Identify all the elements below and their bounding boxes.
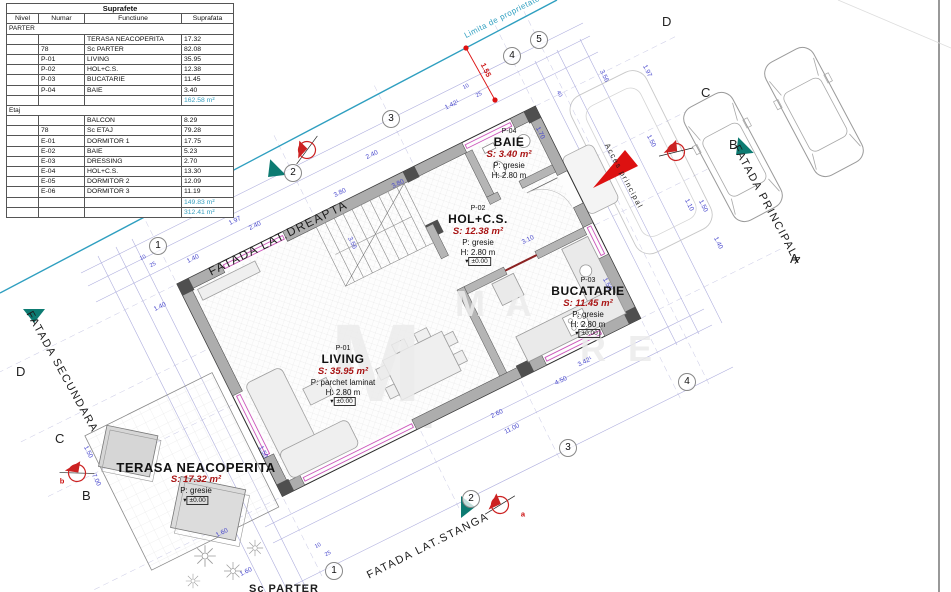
axis-bubble-3: 3	[559, 439, 577, 457]
table-row: P-03BUCATARIE11.45	[7, 75, 234, 85]
table-cell	[39, 95, 85, 105]
dimension-text: 1.50	[645, 134, 657, 148]
axis-bubble-1: 1	[325, 562, 343, 580]
dimension-text: 3.10	[521, 234, 535, 246]
room-height: H: 2.80 m	[448, 248, 508, 258]
cell: E-05	[39, 177, 85, 187]
cell: P-02	[39, 65, 85, 75]
dimension-text: 10	[462, 83, 470, 91]
cell: 13.30	[182, 167, 234, 177]
table-cell	[7, 197, 39, 207]
dimension-text: 3.80	[333, 187, 347, 199]
level-marker: ▾±0.00	[551, 330, 624, 338]
cell	[7, 177, 39, 187]
room-area: S: 35.95 m²	[311, 366, 375, 378]
dimension-text: 25	[324, 550, 332, 558]
dimension-text: 1.40	[186, 253, 200, 265]
cell: DORMITOR 3	[85, 187, 182, 197]
cell	[7, 44, 39, 54]
room-floor-finish: P: gresie	[448, 238, 508, 248]
dimension-text: 1.50	[697, 199, 709, 213]
table-cell	[39, 197, 85, 207]
floor-plan-sheet: M AR EM 1.402.403.801.971.42¹2.403.803.1…	[0, 0, 951, 592]
axis-bubble-5: 5	[530, 31, 548, 49]
facade-label: FATADA LAT.STANGA	[365, 511, 491, 582]
cell: 12.09	[182, 177, 234, 187]
cell	[7, 85, 39, 95]
table-row: TERASA NEACOPERITA17.32	[7, 34, 234, 44]
table-row: 78Sc PARTER82.08	[7, 44, 234, 54]
cell: E-04	[39, 167, 85, 177]
table-row: P-02HOL+C.S.12.38	[7, 65, 234, 75]
table-row: E-03DRESSING2.70	[7, 156, 234, 166]
section-total: 149.83 m²	[182, 197, 234, 207]
dimension-text: 3.56	[346, 236, 358, 250]
table-row: BALCON8.29	[7, 116, 234, 126]
cell: BALCON	[85, 116, 182, 126]
cell	[7, 136, 39, 146]
room-floor-finish: P: gresie	[116, 486, 275, 496]
dimension-text: 10	[314, 542, 322, 550]
table-row: PARTER	[7, 24, 234, 34]
cell: 11.19	[182, 187, 234, 197]
dimension-text: 1.42¹	[444, 99, 460, 112]
cell: DRESSING	[85, 156, 182, 166]
areas-table: SuprafeteNivelNumarFunctiuneSuprafataPAR…	[6, 3, 234, 218]
cell	[7, 167, 39, 177]
cell: 3.40	[182, 85, 234, 95]
dimension-text: 25	[149, 261, 157, 269]
cell: E-03	[39, 156, 85, 166]
dimension-text: 2.40	[365, 149, 379, 161]
room-label: P-04BAIES: 3.40 m²P: gresieH: 2.80 m	[487, 127, 532, 180]
column-header: Nivel	[7, 14, 39, 24]
cell: E-01	[39, 136, 85, 146]
facade-label: Acces principal	[603, 142, 645, 211]
cell	[7, 156, 39, 166]
room-area: S: 11.45 m²	[551, 298, 624, 310]
table-row: E-05DORMITOR 212.09	[7, 177, 234, 187]
table-row: 149.83 m²	[7, 197, 234, 207]
table-row: Suprafete	[7, 4, 234, 14]
cell: 12.38	[182, 65, 234, 75]
dimension-text: 40	[555, 90, 563, 98]
table-cell	[85, 207, 182, 217]
cell	[7, 116, 39, 126]
room-label: P-03BUCATARIES: 11.45 m²P: gresieH: 2.80…	[551, 276, 624, 338]
cell	[7, 126, 39, 136]
cell: 78	[39, 44, 85, 54]
dimension-text: 11.00	[503, 422, 520, 435]
cell: DORMITOR 1	[85, 136, 182, 146]
column-header: Numar	[39, 14, 85, 24]
axis-bubble-D: D	[16, 364, 25, 379]
table-row: E-02BAIE5.23	[7, 146, 234, 156]
table-cell	[85, 197, 182, 207]
room-area: S: 17.32 m²	[116, 474, 275, 486]
table-row: 312.41 m²	[7, 207, 234, 217]
dimension-text: b	[60, 477, 65, 486]
axis-bubble-C: C	[701, 85, 710, 100]
dimension-text: 25	[475, 91, 483, 99]
facade-label: FATADA PRINCIPALA	[730, 143, 803, 267]
dimension-text: 1.55	[479, 61, 493, 78]
room-label: TERASA NEACOPERITAS: 17.32 m²P: gresie▾±…	[116, 461, 275, 505]
room-height: H: 2.80 m	[487, 171, 532, 181]
dimension-text: 3.56	[598, 69, 610, 83]
cell	[7, 65, 39, 75]
cell: 5.23	[182, 146, 234, 156]
cell	[39, 116, 85, 126]
facade-label: FATADA SECUNDARA	[24, 309, 101, 434]
cell: P-01	[39, 54, 85, 64]
cell: HOL+C.S.	[85, 167, 182, 177]
dimension-text: 1.97	[641, 64, 653, 78]
table-row: E-06DORMITOR 311.19	[7, 187, 234, 197]
table-row: P-01LIVING35.95	[7, 54, 234, 64]
level-marker: ▾±0.00	[311, 398, 375, 406]
axis-bubble-B: B	[82, 488, 91, 503]
table-cell	[7, 207, 39, 217]
table-row: 162.58 m²	[7, 95, 234, 105]
cell: E-06	[39, 187, 85, 197]
room-name: HOL+C.S.	[448, 213, 508, 226]
cell: BAIE	[85, 85, 182, 95]
column-header: Functiune	[85, 14, 182, 24]
cell: 82.08	[182, 44, 234, 54]
cell: Sc ETAJ	[85, 126, 182, 136]
cell: P-03	[39, 75, 85, 85]
cell: TERASA NEACOPERITA	[85, 34, 182, 44]
column-header: Suprafata	[182, 14, 234, 24]
cell: 2.70	[182, 156, 234, 166]
dimension-text: 1.70	[534, 126, 546, 140]
axis-bubble-2: 2	[284, 164, 302, 182]
level-marker: ▾±0.00	[116, 497, 275, 505]
dimension-text: 4.50	[554, 375, 568, 387]
axis-bubble-2: 2	[462, 490, 480, 508]
cell: 17.75	[182, 136, 234, 146]
room-name: LIVING	[311, 353, 375, 366]
axis-bubble-4: 4	[678, 373, 696, 391]
dimension-text: 1.10	[683, 198, 695, 212]
cell: BAIE	[85, 146, 182, 156]
dimension-text: 1.40	[712, 236, 724, 250]
cell	[39, 34, 85, 44]
section-total: 312.41 m²	[182, 207, 234, 217]
room-name: BUCATARIE	[551, 285, 624, 298]
cell	[7, 75, 39, 85]
room-floor-finish: P: gresie	[487, 161, 532, 171]
room-area: S: 3.40 m²	[487, 149, 532, 161]
cell	[7, 187, 39, 197]
dimension-text: 1.40	[153, 301, 167, 313]
room-floor-finish: P: gresie	[551, 310, 624, 320]
room-name: BAIE	[487, 136, 532, 149]
table-row: 78Sc ETAJ79.28	[7, 126, 234, 136]
dimension-text: 10	[139, 254, 147, 262]
dimension-text: 7.00	[90, 473, 102, 487]
cell	[7, 54, 39, 64]
cell: P-04	[39, 85, 85, 95]
axis-bubble-3: 3	[382, 110, 400, 128]
cell: 17.32	[182, 34, 234, 44]
level-marker: ▾±0.00	[448, 258, 508, 266]
cell: 79.28	[182, 126, 234, 136]
section-name: Etaj	[7, 105, 234, 115]
cell	[7, 34, 39, 44]
cell: LIVING	[85, 54, 182, 64]
room-height: H: 2.80 m	[311, 388, 375, 398]
section-name: PARTER	[7, 24, 234, 34]
table-row: P-04BAIE3.40	[7, 85, 234, 95]
room-floor-finish: P: parchet laminat	[311, 378, 375, 388]
table-row: NivelNumarFunctiuneSuprafata	[7, 14, 234, 24]
cell	[7, 146, 39, 156]
axis-bubble-D: D	[662, 14, 671, 29]
facade-label: Sc PARTER	[249, 583, 319, 592]
section-total: 162.58 m²	[182, 95, 234, 105]
cell: Sc PARTER	[85, 44, 182, 54]
table-title: Suprafete	[7, 4, 234, 14]
axis-bubble-C: C	[55, 431, 64, 446]
cell: DORMITOR 2	[85, 177, 182, 187]
table-row: Etaj	[7, 105, 234, 115]
dimension-text: a	[521, 510, 525, 519]
cell: 35.95	[182, 54, 234, 64]
table-cell	[39, 207, 85, 217]
dimension-text: 1.50	[257, 445, 269, 459]
dimension-text: 1.60	[239, 566, 253, 578]
table-row: E-01DORMITOR 117.75	[7, 136, 234, 146]
room-name: TERASA NEACOPERITA	[116, 461, 275, 474]
dimension-text: 1.60	[215, 527, 229, 539]
axis-bubble-1: 1	[149, 237, 167, 255]
axis-bubble-4: 4	[503, 47, 521, 65]
dimension-text: 1.50	[82, 445, 94, 459]
room-height: H: 2.80 m	[551, 320, 624, 330]
room-label: P-01LIVINGS: 35.95 m²P: parchet laminatH…	[311, 344, 375, 406]
cell: E-02	[39, 146, 85, 156]
dimension-text: 3.42¹	[577, 356, 593, 369]
dimension-text: 3.80	[391, 178, 405, 190]
cell: 11.45	[182, 75, 234, 85]
cell: BUCATARIE	[85, 75, 182, 85]
facade-label: Limita de proprietate	[463, 0, 541, 40]
room-area: S: 12.38 m²	[448, 226, 508, 238]
cell: HOL+C.S.	[85, 65, 182, 75]
room-label: P-02HOL+C.S.S: 12.38 m²P: gresieH: 2.80 …	[448, 204, 508, 266]
dimension-text: 2.60	[490, 408, 504, 420]
cell: 78	[39, 126, 85, 136]
dimension-text: 2.40	[248, 220, 262, 232]
table-cell	[7, 95, 39, 105]
table-row: E-04HOL+C.S.13.30	[7, 167, 234, 177]
cell: 8.29	[182, 116, 234, 126]
table-cell	[85, 95, 182, 105]
